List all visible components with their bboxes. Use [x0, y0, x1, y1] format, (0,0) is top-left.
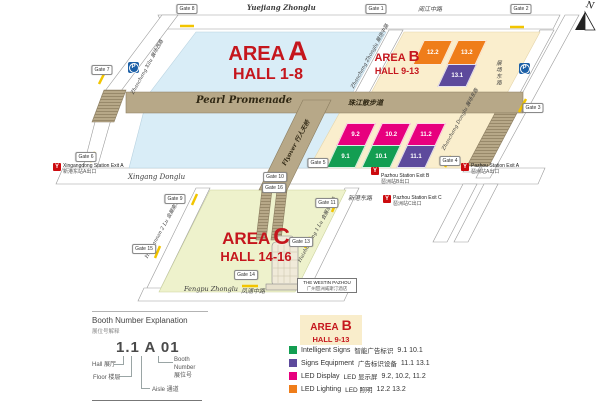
- booth-number-example: 1.1 A 01: [116, 339, 180, 356]
- gate-5: Gate 5: [307, 158, 328, 168]
- canton-fair-complex-map: N AREAA HALL 1-8 AREAB HALL 9-13 AREAC H…: [0, 0, 600, 407]
- metro-icon: Y: [371, 167, 379, 175]
- area-b-title: AREAB HALL 9-13: [360, 49, 434, 76]
- promenade-left-stairs: [92, 90, 126, 122]
- booth-legend-title: Booth Number Explanation: [92, 316, 188, 325]
- magenta-swatch-icon: [289, 372, 297, 380]
- pearl-promenade-label: Pearl Promenade: [196, 95, 292, 106]
- westin-pazhou-label: THE WESTIN PAZHOU 广州琶洲威斯汀酒店: [297, 278, 357, 293]
- area-b-legend-header: AREAB HALL 9-13: [300, 315, 362, 345]
- orange-swatch-icon: [289, 385, 297, 393]
- parking-icon: P: [128, 62, 139, 73]
- road-label-yuejiang-zhonglu: Yuejiang Zhonglu: [247, 3, 316, 12]
- road-label-xingang-donglu: Xingang Donglu: [128, 173, 185, 181]
- connector-aisle: [141, 356, 150, 389]
- parking-icon: P: [519, 63, 530, 74]
- gate-14: Gate 14: [234, 270, 258, 280]
- road-label-xingang-donglu-cn: 新港东路: [348, 193, 372, 202]
- station-pazhou-exit-c: Y Pazhou Station Exit C琶洲站C出口: [383, 195, 442, 208]
- metro-icon: Y: [383, 195, 391, 203]
- gate-15: Gate 15: [132, 244, 156, 254]
- area-b-legend-rows: Intelligent Signs 智能广告标识 9.1 10.1 Signs …: [289, 346, 430, 398]
- road-label-fengpu-zhonglu: Fengpu Zhonglu: [184, 285, 238, 293]
- booth-legend-title-cn: 展位号解释: [92, 327, 120, 335]
- gate-11: Gate 11: [315, 198, 338, 208]
- station-xingangdong-exit-a: Y Xingangdong Station Exit A新港东站A出口: [53, 163, 124, 176]
- road-yuejiang-zhonglu: [158, 15, 560, 29]
- green-swatch-icon: [289, 346, 297, 354]
- gate-10: Gate 10: [263, 172, 287, 182]
- legend-divider-top: [92, 311, 208, 312]
- road-label-zhanchang-donglu-cn: 展场东路: [494, 60, 502, 86]
- purple-swatch-icon: [289, 359, 297, 367]
- gate-3: Gate 3: [522, 103, 543, 113]
- gate-8: Gate 8: [176, 4, 197, 14]
- area-a-title: AREAA HALL 1-8: [198, 38, 338, 83]
- legend-divider-bottom: [92, 400, 202, 401]
- metro-icon: Y: [461, 163, 469, 171]
- connector-floor: [119, 356, 132, 377]
- road-label-fengpu-zhonglu-cn: 凤浦中路: [241, 286, 265, 295]
- booth-legend-booth-number: Booth Number 展位号: [174, 357, 195, 380]
- road-label-yuejiang-zhonglu-cn: 阅江中路: [418, 4, 442, 13]
- booth-legend-hall: Hall 展厅: [92, 359, 116, 368]
- gate-13: Gate 13: [289, 237, 313, 247]
- legend-item-intelligent-signs: Intelligent Signs 智能广告标识 9.1 10.1: [289, 346, 430, 354]
- booth-legend-aisle: Aisle 通道: [152, 384, 179, 393]
- gate-1: Gate 1: [365, 4, 386, 14]
- gate-2: Gate 2: [510, 4, 531, 14]
- legend-item-signs-equipment: Signs Equipment 广告标识设备 11.1 13.1: [289, 359, 430, 367]
- gate-7: Gate 7: [91, 65, 112, 75]
- legend-item-led-lighting: LED Lighting LED 照明 12.2 13.2: [289, 385, 430, 393]
- gate-9: Gate 9: [164, 194, 185, 204]
- station-pazhou-exit-b: Y Pazhou Station Exit B琶洲站B出口: [371, 167, 429, 186]
- legend-item-led-display: LED Display LED 显示屏 9.2, 10.2, 11.2: [289, 372, 430, 380]
- gate-16: Gate 16: [262, 183, 286, 193]
- connector-booth: [158, 356, 173, 363]
- gate-4: Gate 4: [439, 156, 460, 166]
- metro-icon: Y: [53, 163, 61, 171]
- booth-legend-floor: Floor 楼层: [93, 372, 120, 381]
- station-pazhou-exit-a: Y Pazhou Station Exit A琶洲站A出口: [461, 163, 519, 176]
- pearl-promenade-label-cn: 珠江散步道: [348, 98, 383, 108]
- gate-6: Gate 6: [75, 152, 96, 162]
